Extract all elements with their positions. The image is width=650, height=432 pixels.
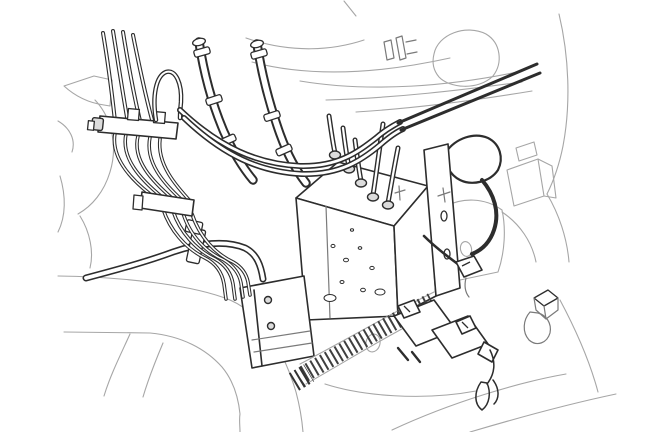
bolt-icon <box>268 323 275 330</box>
brake-pipe <box>401 73 540 130</box>
engine-bay-illustration <box>0 0 650 432</box>
tube-nut <box>368 193 379 201</box>
brake-pipe-bundle <box>114 133 192 203</box>
upper-pipe-clamp-bracket <box>87 109 178 139</box>
hatching <box>143 343 163 397</box>
harness-connector-blocks <box>394 300 498 410</box>
illustration-canvas <box>0 0 650 432</box>
tube-nut <box>383 201 394 209</box>
pump-motor-block <box>240 276 314 368</box>
hatching <box>104 334 130 396</box>
pipe-clip <box>127 109 139 121</box>
tube-nut <box>356 179 367 187</box>
bolt-icon <box>87 118 103 131</box>
small-bracket <box>384 36 417 60</box>
grommet-plug <box>524 290 558 344</box>
bolt-icon <box>265 297 272 304</box>
connector <box>456 256 482 277</box>
strut-tower-outline <box>64 76 112 106</box>
